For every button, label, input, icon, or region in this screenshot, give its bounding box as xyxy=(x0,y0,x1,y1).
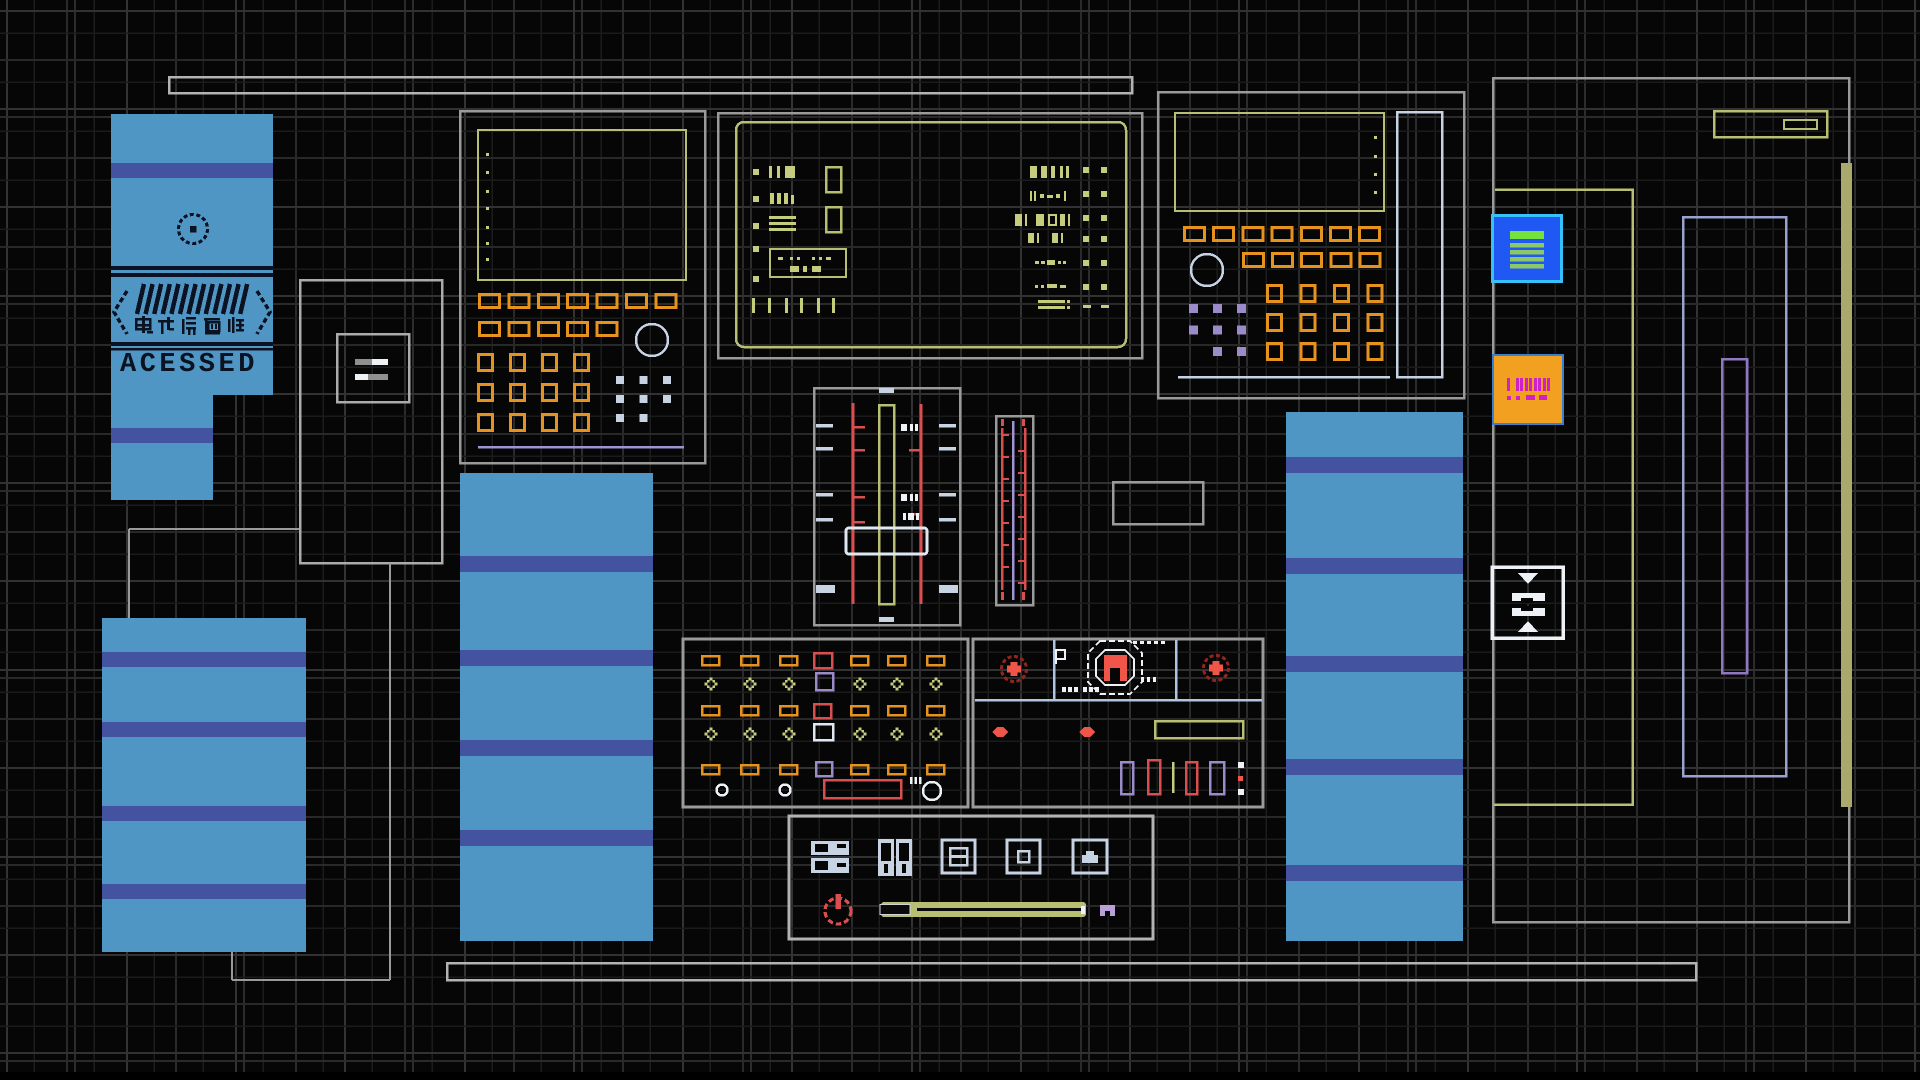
svg-text:ACESSED: ACESSED xyxy=(120,350,258,380)
